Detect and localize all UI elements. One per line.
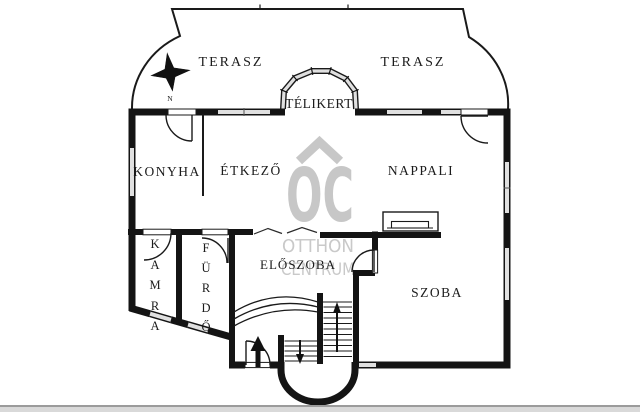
kamra-letter: R [151, 299, 160, 313]
stairs-down-arrow-icon [296, 340, 304, 364]
floor-plan-svg: OC OTTHON CENTRUM [0, 0, 640, 412]
room-label-szoba: SZOBA [411, 285, 463, 300]
furdo-letter: Ő [201, 320, 210, 334]
image-bottom-edge [0, 405, 640, 412]
entry-bay-wall [281, 362, 355, 402]
room-door [352, 250, 374, 272]
room-label-eloszoba: ELŐSZOBA [260, 257, 336, 272]
kamra-letter: K [150, 237, 159, 251]
floor-plan-image: OC OTTHON CENTRUM [0, 0, 640, 412]
stairs-up-arrow-icon [333, 302, 341, 352]
room-label-terasz-right: TERASZ [381, 55, 446, 70]
kamra-letter: A [150, 319, 159, 333]
living-room-door [461, 116, 488, 143]
kamra-letter: A [150, 258, 159, 272]
furdo-letter: Ü [201, 261, 210, 275]
furdo-letter: R [202, 281, 211, 295]
compass-icon [148, 50, 192, 93]
staircase [234, 297, 352, 364]
fireplace [383, 212, 438, 231]
furdo-letter: D [201, 301, 210, 315]
room-label-telikert: TÉLIKERT [285, 96, 353, 111]
terrace-outline [132, 5, 508, 110]
furdo-letter: F [203, 241, 210, 255]
room-label-konyha: KONYHA [133, 164, 201, 179]
compass-north-label: N [167, 94, 173, 103]
room-label-kamra: K A M R A [149, 237, 160, 333]
window-mullion-ticks [244, 108, 511, 188]
curved-steps [234, 297, 318, 326]
kitchen-door [166, 115, 192, 141]
watermark-line1: OTTHON [282, 236, 354, 257]
room-label-terasz-left: TERASZ [199, 55, 264, 70]
watermark-logo-text: OC [286, 153, 354, 239]
room-label-furdo: F Ü R D Ő [201, 241, 210, 334]
terrace-boundary [132, 9, 508, 109]
room-label-etkezo: ÉTKEZŐ [220, 163, 281, 178]
kamra-letter: M [149, 278, 160, 292]
room-label-nappali: NAPPALI [388, 163, 454, 178]
